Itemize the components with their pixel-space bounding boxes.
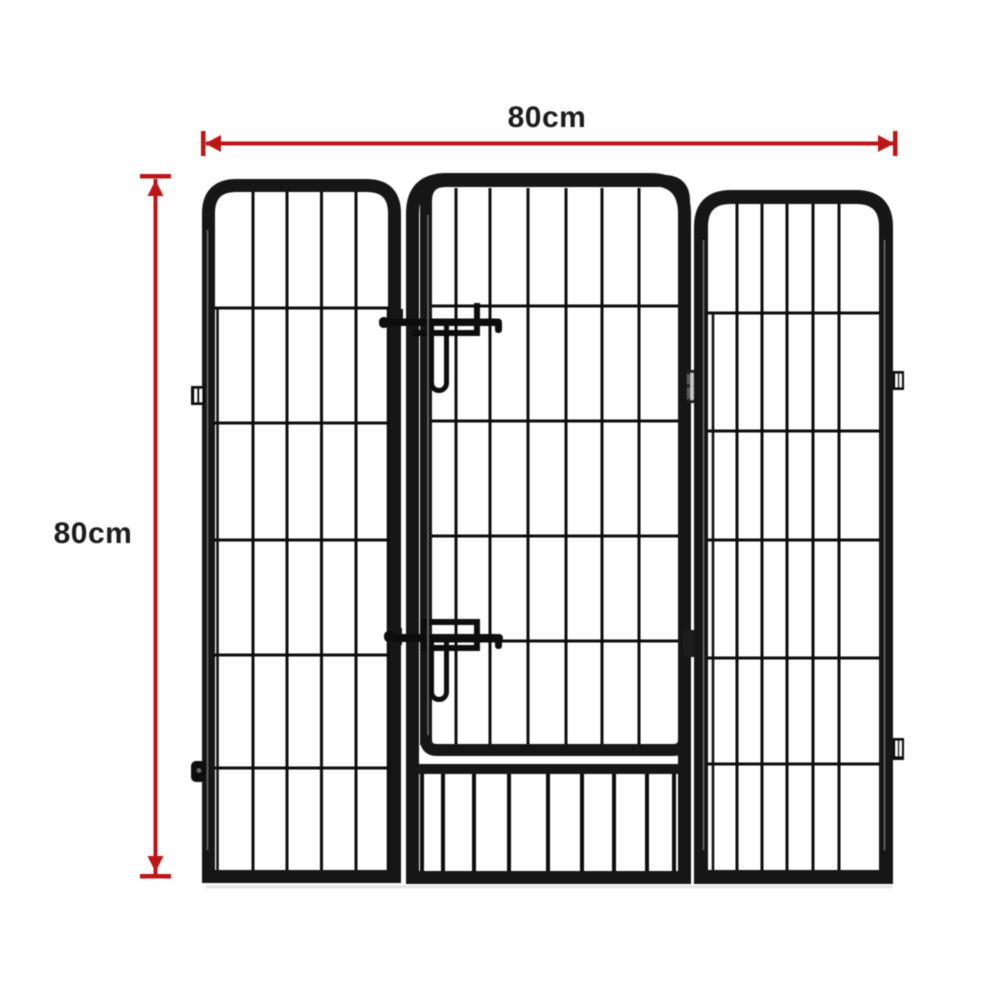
svg-text:80cm: 80cm bbox=[508, 101, 587, 134]
svg-text:80cm: 80cm bbox=[54, 517, 133, 550]
